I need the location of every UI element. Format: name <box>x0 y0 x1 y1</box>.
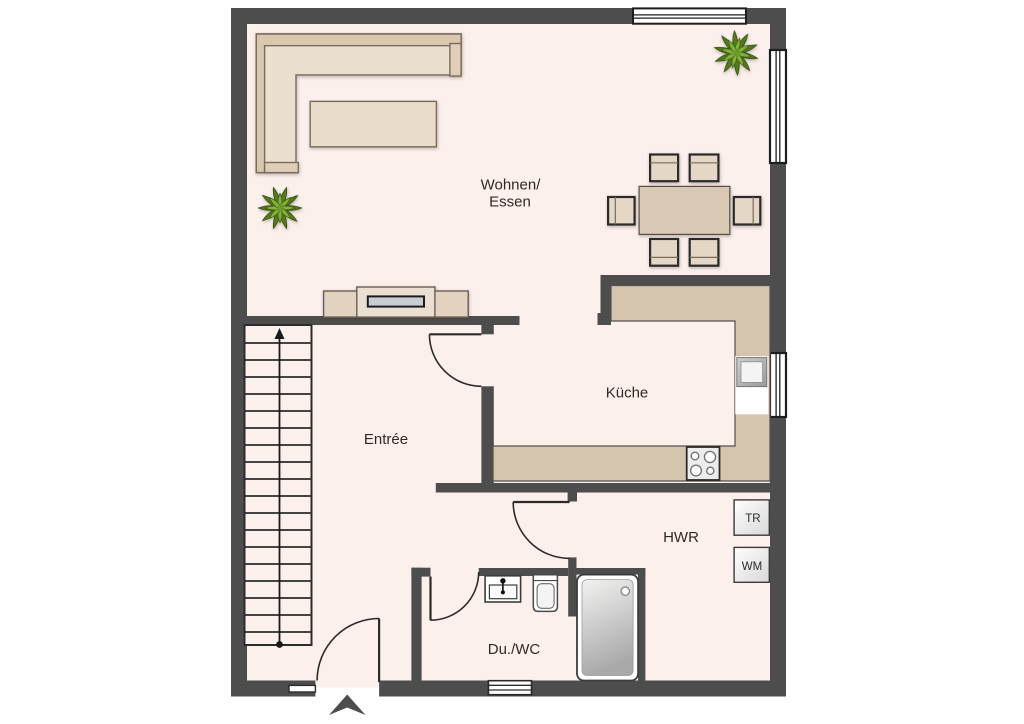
svg-text:Essen: Essen <box>489 194 531 211</box>
svg-text:HWR: HWR <box>663 529 699 546</box>
svg-text:WM: WM <box>742 561 762 573</box>
svg-text:TR: TR <box>745 513 760 525</box>
svg-text:Küche: Küche <box>606 385 649 402</box>
svg-text:Entrée: Entrée <box>364 431 408 448</box>
svg-text:Du./WC: Du./WC <box>488 641 541 658</box>
svg-text:Wohnen/: Wohnen/ <box>481 177 542 194</box>
